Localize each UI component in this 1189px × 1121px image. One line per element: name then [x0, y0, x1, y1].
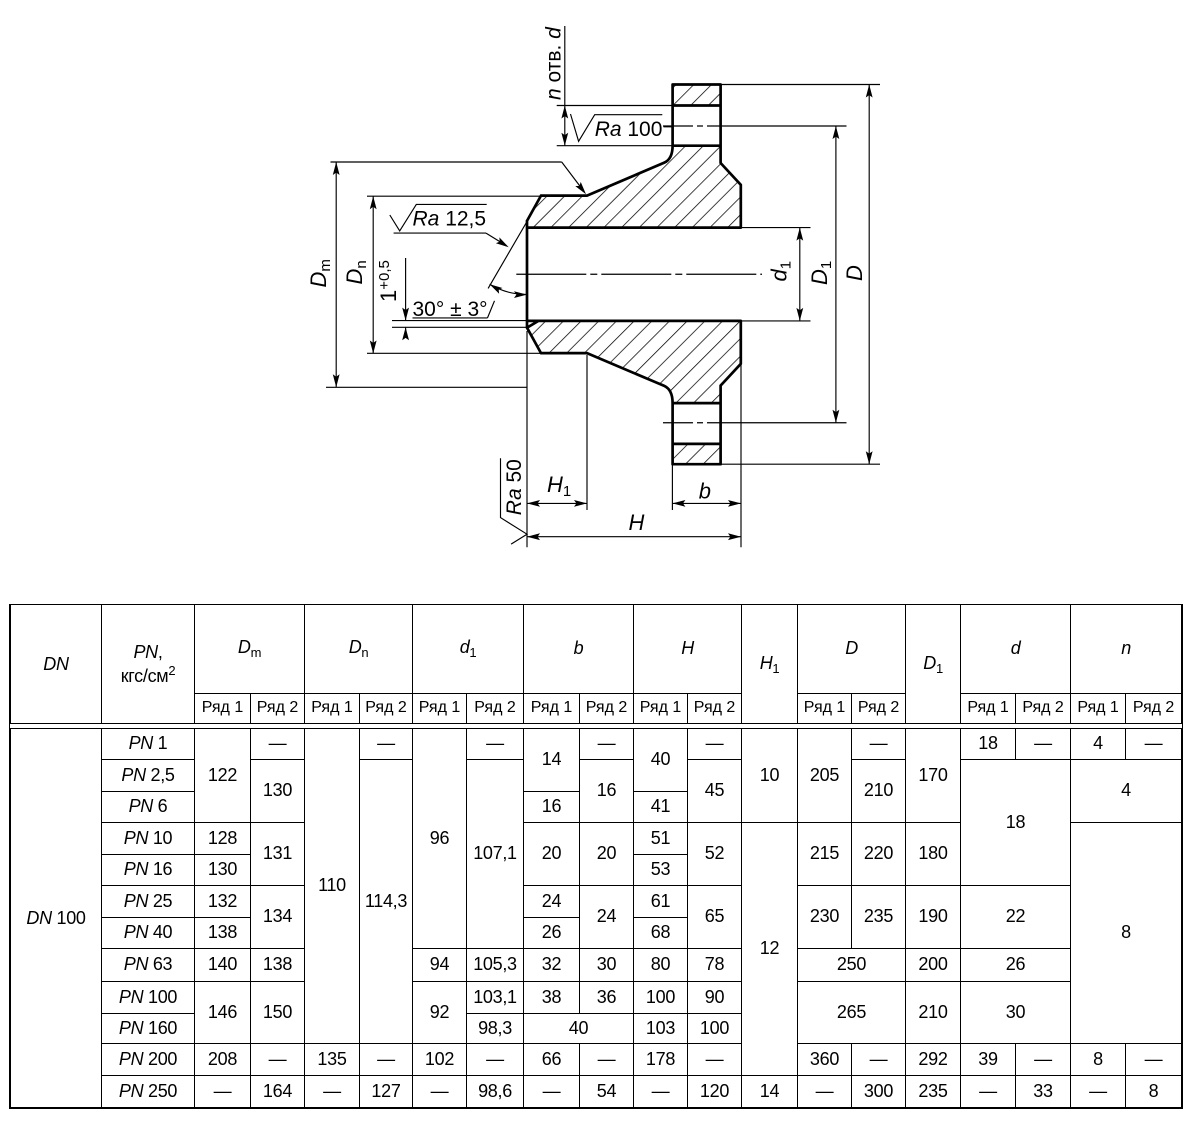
svg-text:Ra 100: Ra 100 — [595, 118, 663, 141]
svg-text:Ra 12,5: Ra 12,5 — [413, 208, 487, 231]
svg-text:d1: d1 — [767, 261, 795, 282]
svg-text:Ra 50: Ra 50 — [503, 459, 526, 515]
svg-text:H: H — [629, 510, 645, 535]
svg-text:D1: D1 — [807, 261, 835, 285]
svg-text:n отв. d: n отв. d — [542, 26, 565, 100]
svg-text:H1: H1 — [547, 472, 571, 500]
svg-text:D: D — [842, 265, 867, 281]
svg-text:b: b — [699, 479, 711, 504]
svg-text:Dm: Dm — [306, 259, 334, 287]
svg-text:Dn: Dn — [342, 260, 370, 284]
svg-text:30° ± 3°: 30° ± 3° — [413, 298, 488, 321]
svg-text:1+0,5: 1+0,5 — [376, 260, 401, 302]
